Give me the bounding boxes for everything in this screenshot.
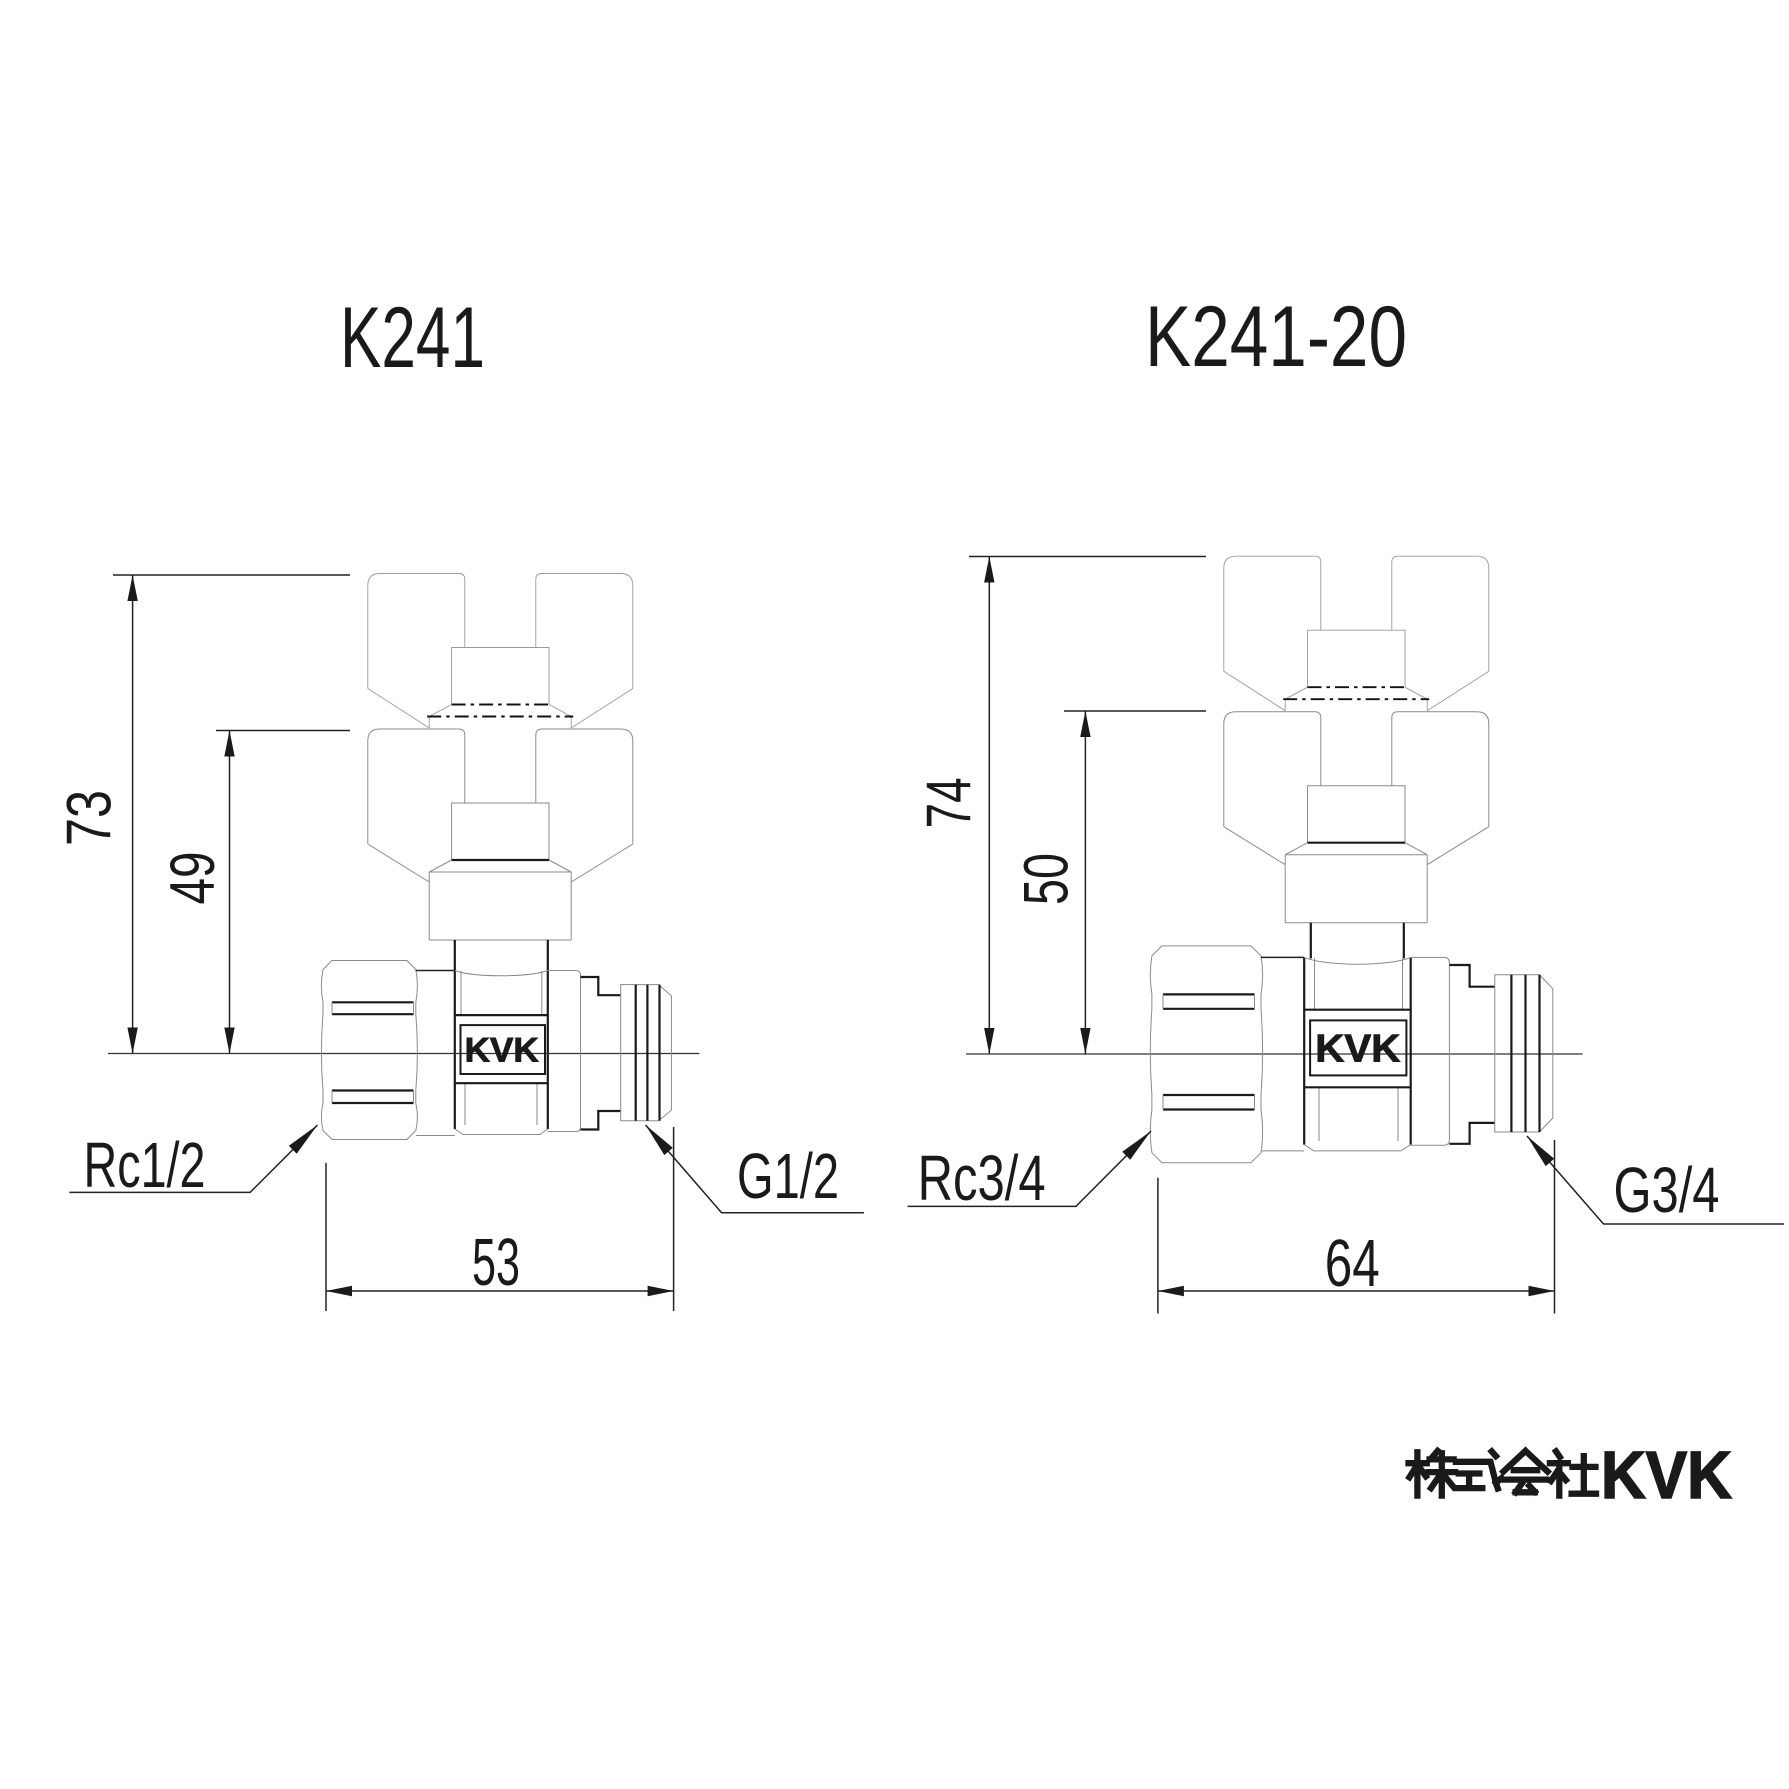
svg-text:G1/2: G1/2 [737, 1140, 839, 1212]
svg-text:K241: K241 [340, 290, 485, 386]
svg-text:Rc1/2: Rc1/2 [84, 1129, 206, 1201]
svg-text:53: 53 [472, 1225, 520, 1300]
svg-text:74: 74 [915, 777, 985, 828]
svg-text:KVK: KVK [1315, 1028, 1400, 1071]
svg-text:KVK: KVK [1601, 1438, 1732, 1513]
svg-text:Rc3/4: Rc3/4 [918, 1142, 1046, 1214]
svg-text:K241-20: K241-20 [1145, 289, 1407, 385]
svg-text:50: 50 [1012, 853, 1082, 905]
svg-text:G3/4: G3/4 [1614, 1154, 1720, 1226]
svg-text:KVK: KVK [465, 1031, 539, 1069]
svg-text:73: 73 [54, 790, 124, 846]
svg-text:64: 64 [1325, 1226, 1380, 1301]
svg-text:49: 49 [158, 852, 228, 905]
